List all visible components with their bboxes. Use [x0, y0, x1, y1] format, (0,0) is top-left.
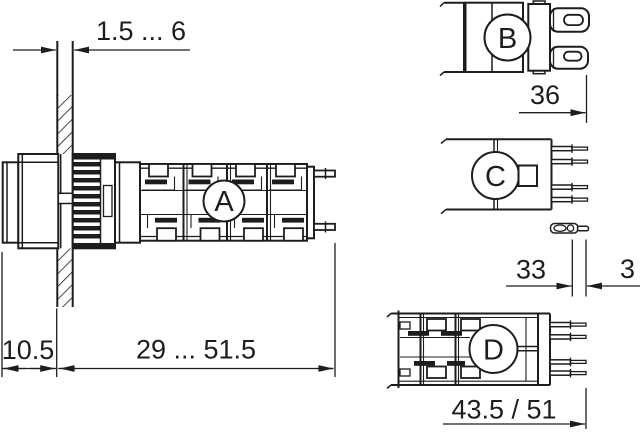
pin — [550, 358, 586, 367]
dimension-length-view-c: 33 — [506, 240, 586, 297]
view-label-a: A — [204, 181, 245, 222]
pin — [552, 183, 588, 192]
view-d-pins — [550, 320, 586, 377]
blade-terminal-upper — [550, 8, 589, 31]
knurled-collar — [73, 154, 115, 248]
panel-cross-section — [57, 41, 72, 307]
pin — [552, 157, 588, 166]
dimension-mounting-depth: 29 ... 51.5 — [58, 243, 335, 377]
dimension-text-terminal-tip: 3 — [620, 254, 635, 284]
view-label-c: C — [472, 152, 519, 199]
dimension-front-projection: 10.5 — [2, 252, 57, 377]
panel-hatch-upper — [57, 95, 72, 154]
view-a-letter: A — [214, 186, 234, 218]
dimension-length-view-d: 43.5 / 51 — [443, 388, 586, 429]
body-neck — [115, 162, 140, 242]
dimension-width-view-b: 36 — [519, 75, 587, 123]
view-label-d: D — [470, 325, 518, 373]
pin — [550, 333, 586, 342]
view-d-contact-details — [400, 319, 480, 378]
pin — [552, 195, 588, 204]
blade-slot — [564, 15, 583, 25]
pin — [552, 144, 588, 153]
terminal-pin-upper — [314, 171, 335, 177]
panel-shaft — [58, 154, 72, 248]
technical-drawing: A 1.5 ... 6 10.5 29 ... 51.5 — [0, 0, 640, 437]
dimension-text-front-projection: 10.5 — [2, 335, 55, 365]
view-d-letter: D — [483, 335, 504, 367]
blade-slot — [564, 52, 582, 61]
dimension-text-width-view-b: 36 — [530, 80, 560, 110]
view-c-pins — [552, 144, 588, 204]
view-c-view: C — [441, 139, 589, 233]
view-d-view: D — [387, 311, 586, 389]
technical-drawing-page: A 1.5 ... 6 10.5 29 ... 51.5 — [0, 0, 640, 437]
dimension-text-length-view-c: 33 — [516, 255, 546, 285]
view-label-b: B — [485, 15, 531, 61]
terminal-pin-lower — [314, 224, 335, 230]
dimension-terminal-tip: 3 — [587, 254, 640, 286]
view-b-top-view: B — [440, 1, 589, 76]
anti-rotation-tab — [58, 193, 72, 203]
blade-terminal-symbol — [551, 224, 589, 234]
dimension-panel-thickness: 1.5 ... 6 — [13, 16, 190, 50]
panel-hatch-lower — [57, 249, 72, 308]
button-cap — [3, 162, 19, 242]
dimension-text-panel-thickness: 1.5 ... 6 — [96, 16, 186, 46]
body-end-cap — [307, 167, 314, 239]
pin — [550, 320, 586, 329]
dimension-text-length-view-d: 43.5 / 51 — [451, 395, 556, 425]
front-flange — [18, 154, 58, 248]
dimension-text-mounting-depth: 29 ... 51.5 — [136, 335, 256, 365]
view-c-letter: C — [485, 161, 506, 193]
pin — [550, 369, 586, 378]
view-a-side-view: A — [3, 154, 335, 248]
blade-terminal-lower — [550, 47, 588, 69]
view-b-letter: B — [498, 23, 517, 55]
view-b-mounting-flange — [528, 1, 550, 74]
view-c-lamp-socket — [519, 166, 538, 187]
